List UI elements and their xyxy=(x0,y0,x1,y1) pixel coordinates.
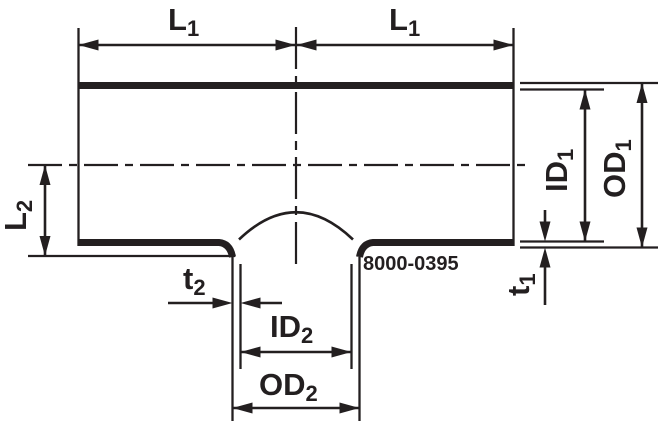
arrowhead-up xyxy=(540,248,551,268)
arrowhead-top xyxy=(637,83,648,103)
arrowhead-right xyxy=(213,298,233,309)
label-od1: OD1 xyxy=(597,139,636,198)
dim-t2: t2 xyxy=(168,261,282,309)
arrowhead-right xyxy=(332,347,352,358)
dim-l1-left: L1 xyxy=(79,2,296,51)
dim-id1: ID1 xyxy=(520,90,604,242)
label-l2: L2 xyxy=(0,200,37,231)
arrowhead-down xyxy=(540,222,551,242)
tee-fitting-dimension-drawing: L1 L1 L2 ID1 xyxy=(0,0,659,425)
arrowhead-bottom xyxy=(637,228,648,248)
arrowhead-right xyxy=(494,40,514,51)
label-od2: OD2 xyxy=(259,367,318,406)
label-id1: ID1 xyxy=(539,149,578,192)
arrowhead-top xyxy=(40,165,51,185)
arrowhead-bottom xyxy=(40,236,51,256)
dim-id2: ID2 xyxy=(241,309,352,358)
label-t1: t1 xyxy=(501,273,540,296)
label-l1-left: L1 xyxy=(168,2,199,41)
arrowhead-top xyxy=(580,90,591,110)
arrowhead-left xyxy=(233,403,253,414)
dim-l1-right: L1 xyxy=(297,2,514,51)
run-bottom-wall-left-with-fillet xyxy=(78,243,233,258)
dim-t1: t1 xyxy=(501,210,551,305)
drawing-page: L1 L1 L2 ID1 xyxy=(0,0,659,425)
arrowhead-left xyxy=(79,40,99,51)
label-t2: t2 xyxy=(183,261,206,300)
label-l1-right: L1 xyxy=(389,2,420,41)
arrowhead-right xyxy=(340,403,360,414)
centerlines xyxy=(28,27,530,267)
arrowhead-bottom xyxy=(580,222,591,242)
arrowhead-right xyxy=(276,40,296,51)
dim-l2: L2 xyxy=(0,165,51,256)
dim-od2: OD2 xyxy=(233,367,360,414)
arrowhead-left xyxy=(241,298,261,309)
arrowhead-left xyxy=(297,40,317,51)
arrowhead-left xyxy=(241,347,261,358)
label-id2: ID2 xyxy=(270,309,313,348)
part-number: 8000-0395 xyxy=(363,253,459,275)
